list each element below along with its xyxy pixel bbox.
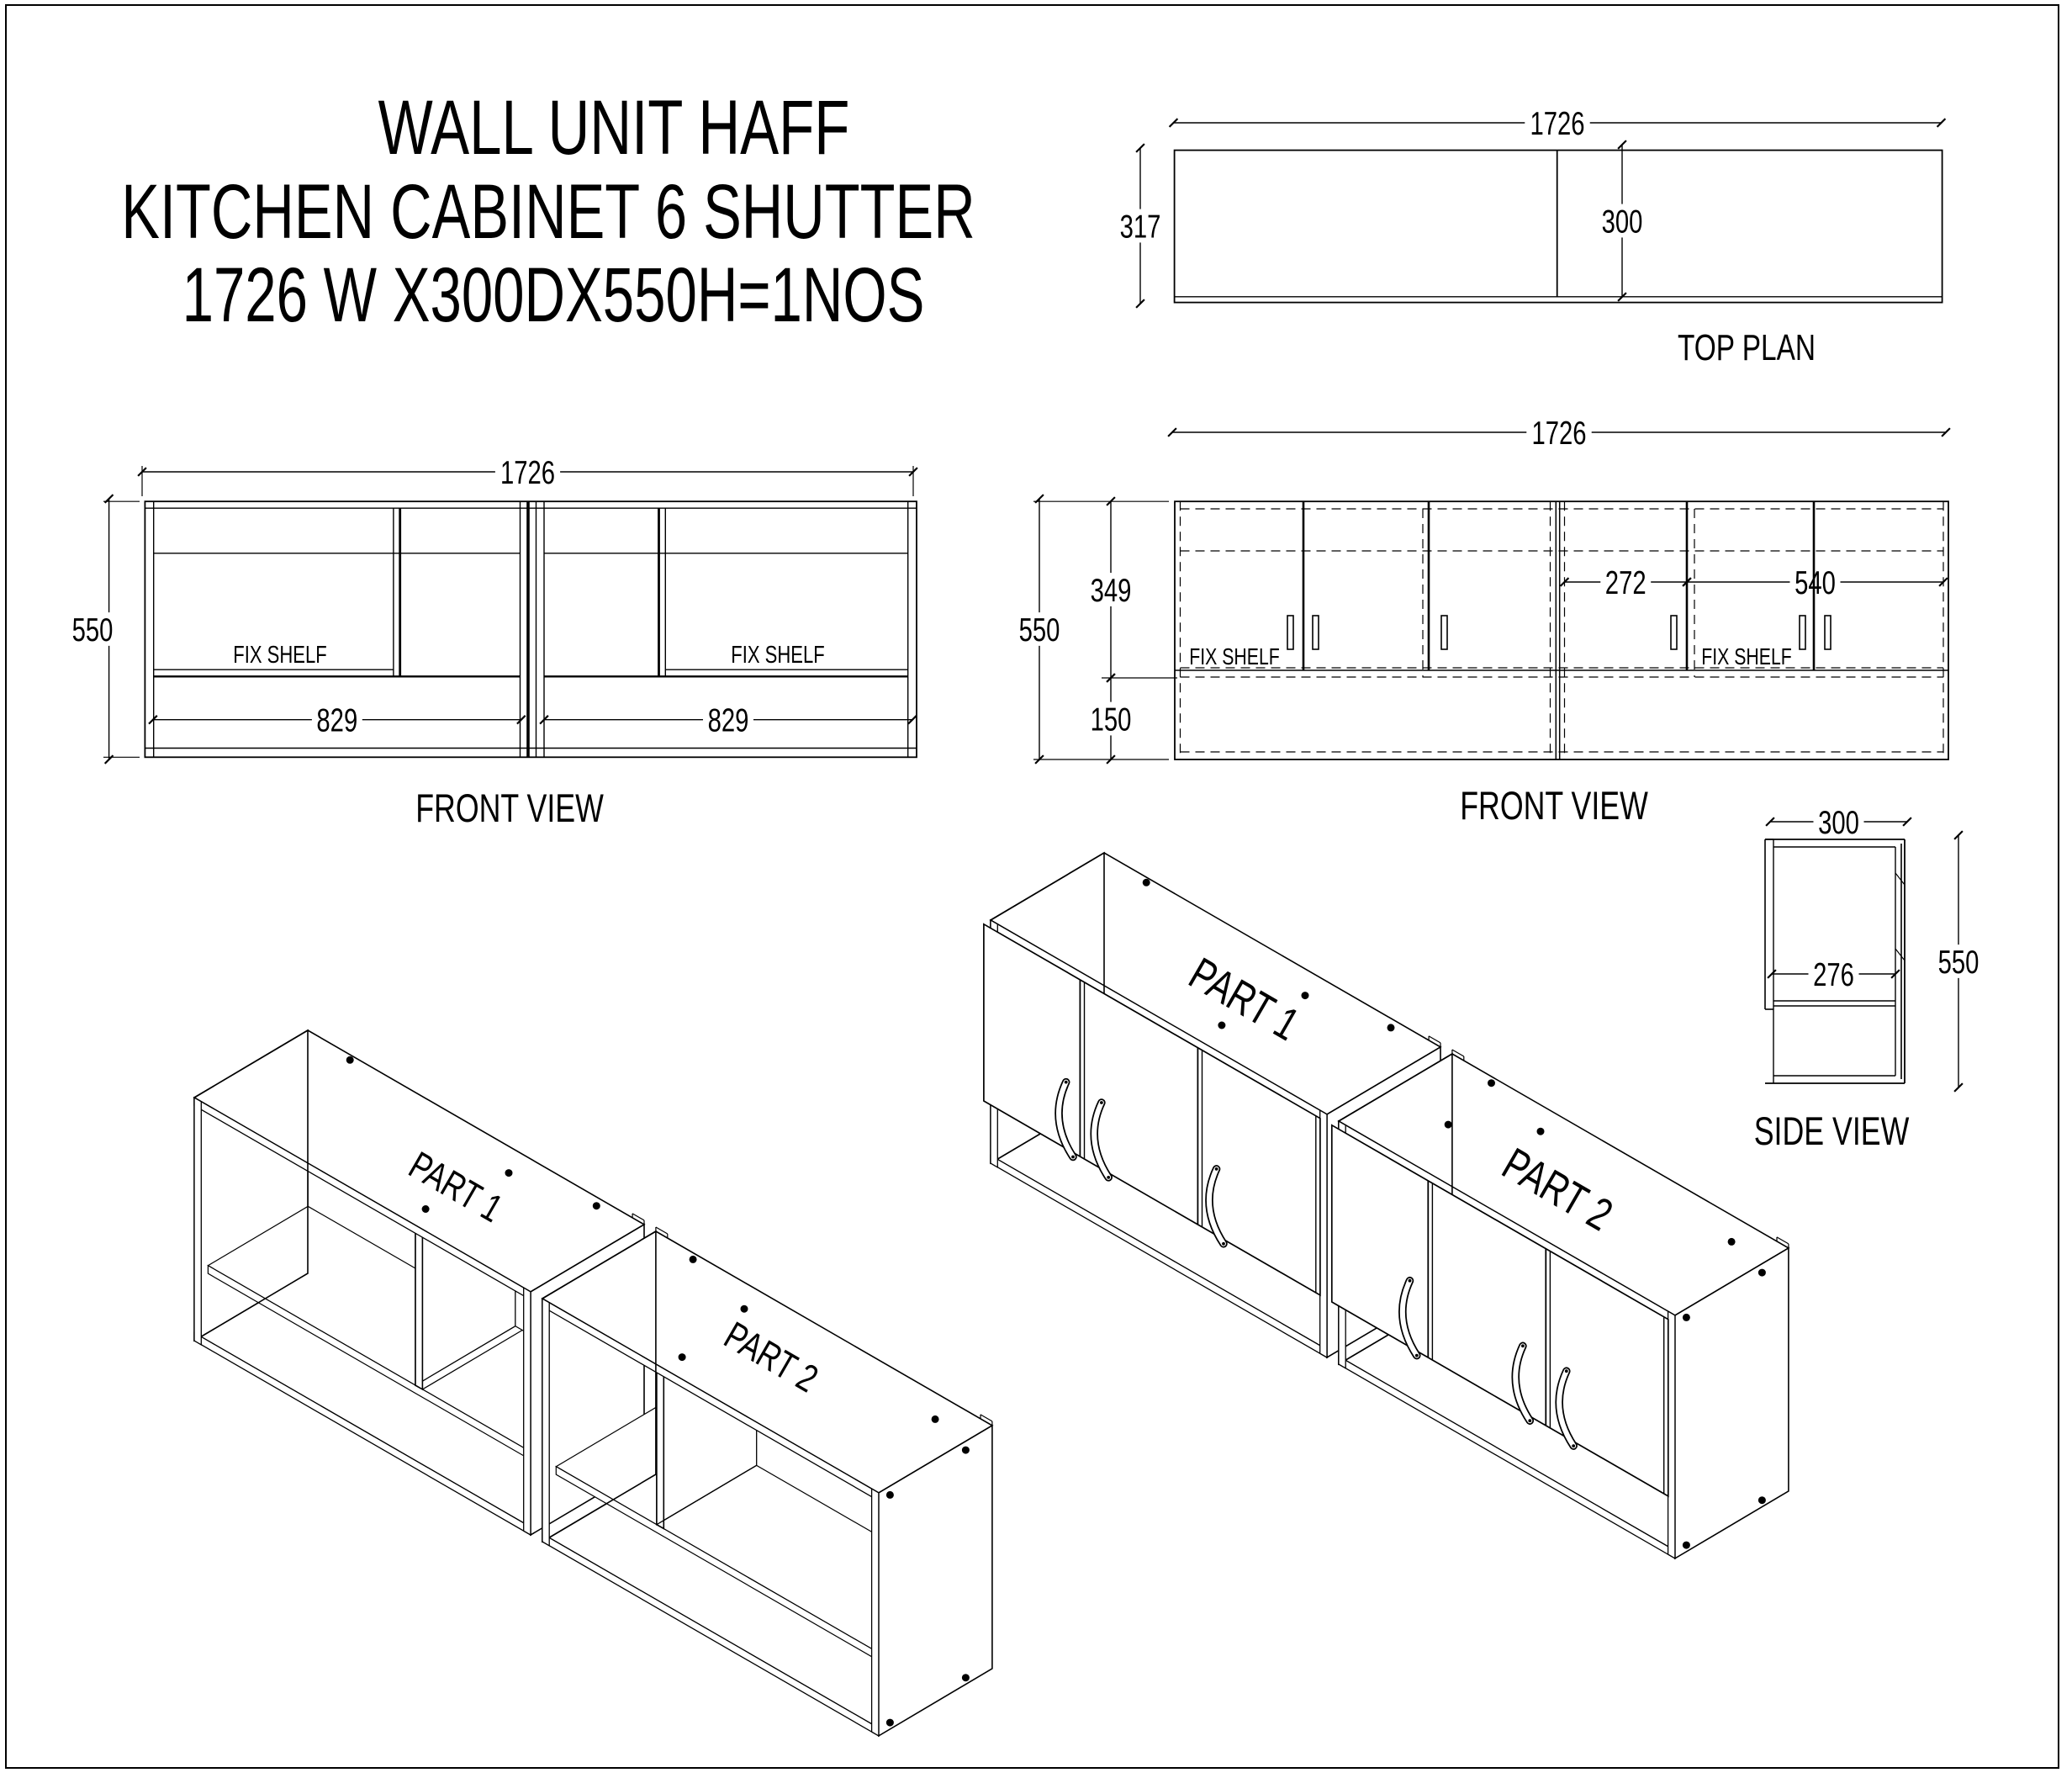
svg-text:FIX SHELF: FIX SHELF [233,642,326,669]
svg-text:SIDE VIEW: SIDE VIEW [1754,1109,1910,1153]
svg-text:300: 300 [1818,805,1859,841]
svg-text:150: 150 [1091,702,1132,738]
svg-text:272: 272 [1605,565,1646,601]
svg-text:FIX SHELF: FIX SHELF [1189,643,1280,670]
svg-text:1726: 1726 [1531,415,1586,452]
svg-text:1726 W X300DX550H=1NOS: 1726 W X300DX550H=1NOS [182,252,925,339]
svg-text:FRONT VIEW: FRONT VIEW [415,786,604,830]
svg-text:WALL UNIT HAFF: WALL UNIT HAFF [378,84,850,171]
svg-text:KITCHEN CABINET 6 SHUTTER: KITCHEN CABINET 6 SHUTTER [121,169,975,255]
svg-text:550: 550 [1938,945,1979,981]
svg-text:FIX SHELF: FIX SHELF [731,642,824,669]
svg-text:317: 317 [1120,209,1161,246]
svg-text:276: 276 [1813,957,1854,993]
svg-text:829: 829 [708,703,749,739]
svg-text:1726: 1726 [1530,106,1584,142]
svg-text:FIX SHELF: FIX SHELF [1701,643,1792,670]
svg-text:550: 550 [72,612,114,648]
svg-text:FRONT VIEW: FRONT VIEW [1460,783,1648,828]
svg-text:349: 349 [1091,573,1132,609]
svg-text:540: 540 [1794,565,1836,601]
svg-text:829: 829 [316,703,357,739]
svg-text:550: 550 [1019,612,1060,648]
svg-text:300: 300 [1602,204,1643,241]
svg-text:TOP PLAN: TOP PLAN [1678,328,1816,368]
svg-text:1726: 1726 [500,455,555,491]
